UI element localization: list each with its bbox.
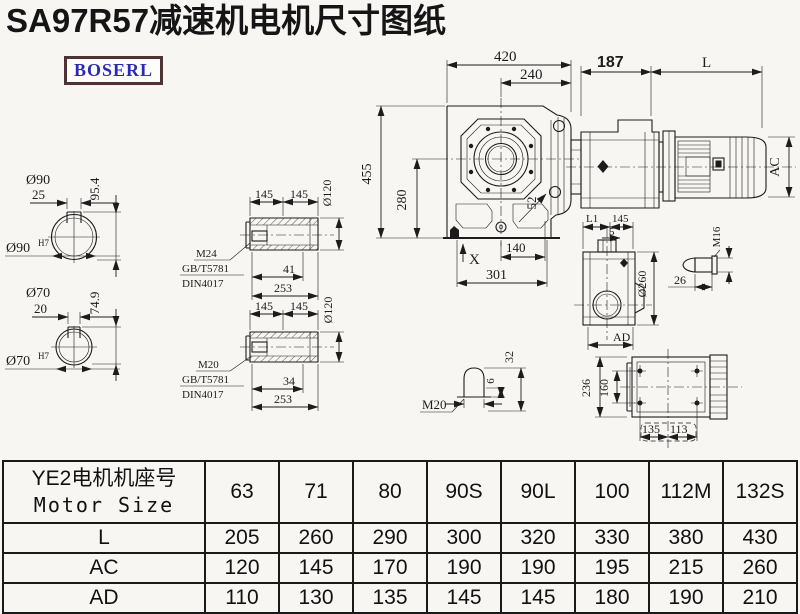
dim-label: 41 [283, 262, 295, 276]
dim-label: 140 [506, 240, 526, 255]
m16-bolt-detail: M16 26 [668, 226, 733, 291]
dim-label: 25 [32, 187, 45, 202]
row-label-ac: AC [3, 553, 205, 583]
dim-label: Ø70 [26, 286, 50, 301]
table-cell: 190 [427, 553, 501, 583]
dim-label: 145 [290, 187, 308, 201]
dim-label: 95.4 [87, 177, 102, 200]
output-side-view: L1 145 5 Ø260 AD [574, 213, 659, 350]
col-header-63: 63 [205, 461, 279, 523]
shaft-section-70: Ø70 20 74.9 Ø70 H7 [5, 286, 121, 381]
dim-label: 236 [579, 379, 593, 397]
col-header-90s: 90S [427, 461, 501, 523]
dim-label: 240 [520, 67, 543, 83]
col-header-132s: 132S [723, 461, 797, 523]
table-cell: 145 [279, 553, 353, 583]
dimension-drawing-page: SA97R57减速机电机尺寸图纸 BOSERL Ø90 25 95.4 [0, 0, 800, 613]
table-cell: 130 [279, 583, 353, 613]
table-header-cn: YE2电机机座号 [4, 466, 204, 492]
dim-label: 280 [395, 190, 410, 211]
table-cell: 260 [279, 523, 353, 553]
table-cell: 180 [575, 583, 649, 613]
dim-label: AC [768, 157, 783, 176]
hollow-shaft-m20: 145 145 Ø120 M20 GB/T5781 DIN4017 34 253 [180, 297, 344, 411]
table-header-en: Motor Size [4, 492, 204, 518]
table-row-ad: AD 110 130 135 145 145 180 190 210 [3, 583, 797, 613]
dim-label: Ø90 [6, 241, 30, 256]
table-row-l: L 205 260 290 300 320 330 380 430 [3, 523, 797, 553]
standard-label: GB/T5781 [182, 374, 229, 386]
thread-label: M24 [196, 248, 217, 260]
col-header-100: 100 [575, 461, 649, 523]
dim-label: 20 [34, 301, 47, 316]
table-cell: 195 [575, 553, 649, 583]
dim-label: 145 [255, 187, 273, 201]
dim-label: 113 [670, 422, 688, 436]
table-cell: 215 [649, 553, 723, 583]
dim-label: Ø260 [635, 271, 649, 298]
table-cell: 145 [427, 583, 501, 613]
m20-plug-detail: M20 6 32 [420, 351, 526, 412]
table-cell: 145 [501, 583, 575, 613]
table-cell: 380 [649, 523, 723, 553]
dim-label: 34 [283, 374, 295, 388]
dim-label: Ø70 [6, 354, 30, 369]
dim-label: 253 [274, 392, 292, 406]
dim-label: 5 [609, 226, 615, 238]
table-cell: 300 [427, 523, 501, 553]
row-label-l: L [3, 523, 205, 553]
dim-label: 52 [524, 197, 539, 210]
dim-label: Ø90 [26, 173, 50, 188]
dim-label: 26 [674, 273, 686, 287]
dim-label: 420 [494, 49, 517, 65]
table-cell: 330 [575, 523, 649, 553]
thread-label: M16 [711, 226, 723, 247]
row-label-ad: AD [3, 583, 205, 613]
table-cell: 205 [205, 523, 279, 553]
dim-label: 301 [486, 268, 507, 283]
dim-label: Ø120 [320, 180, 334, 207]
dim-label: 145 [290, 299, 308, 313]
table-cell: 320 [501, 523, 575, 553]
technical-drawing: Ø90 25 95.4 Ø90 H7 Ø70 20 [0, 0, 800, 462]
table-cell: 120 [205, 553, 279, 583]
standard-label: GB/T5781 [182, 263, 229, 275]
dim-label: 455 [360, 164, 375, 185]
dim-label: 135 [642, 422, 660, 436]
table-header-motor-size: YE2电机机座号 Motor Size [3, 461, 205, 523]
dim-label: 6 [485, 378, 497, 384]
table-cell: 260 [723, 553, 797, 583]
shaft-section-90: Ø90 25 95.4 Ø90 H7 [5, 173, 121, 277]
table-cell: 190 [501, 553, 575, 583]
col-header-80: 80 [353, 461, 427, 523]
thread-label: M20 [198, 359, 219, 371]
table-cell: 210 [723, 583, 797, 613]
table-row-ac: AC 120 145 170 190 190 195 215 260 [3, 553, 797, 583]
dim-label: 145 [612, 213, 629, 225]
table-cell: 190 [649, 583, 723, 613]
dim-label: 32 [502, 351, 516, 363]
col-header-71: 71 [279, 461, 353, 523]
dim-tolerance: H7 [38, 238, 49, 248]
col-header-90l: 90L [501, 461, 575, 523]
dim-label: L1 [586, 213, 598, 225]
top-view: 236 160 135 113 [579, 349, 742, 448]
dim-label: X [469, 252, 480, 268]
dim-label: 74.9 [87, 292, 102, 315]
dim-label: 187 [597, 54, 624, 71]
table-cell: 290 [353, 523, 427, 553]
thread-label: M20 [422, 397, 447, 412]
motor-size-table: YE2电机机座号 Motor Size 63 71 80 90S 90L 100… [2, 460, 798, 614]
standard-label: DIN4017 [182, 389, 224, 401]
table-cell: 170 [353, 553, 427, 583]
front-view: X 52 420 240 455 280 140 301 [360, 49, 582, 287]
table-cell: 110 [205, 583, 279, 613]
dim-label: 145 [255, 299, 273, 313]
table-cell: 430 [723, 523, 797, 553]
standard-label: DIN4017 [182, 278, 224, 290]
dim-label: 160 [597, 379, 611, 397]
dim-label: Ø120 [321, 297, 335, 324]
dim-label: 253 [274, 281, 292, 295]
dim-label: AD [613, 330, 631, 344]
col-header-112m: 112M [649, 461, 723, 523]
dim-tolerance: H7 [38, 351, 49, 361]
dim-label: L [702, 55, 711, 71]
side-view: 187 L AC [566, 54, 796, 208]
table-cell: 135 [353, 583, 427, 613]
hollow-shaft-m24: 145 145 Ø120 M24 GB/T5781 DIN4017 41 253 [180, 180, 344, 300]
table-header-row: YE2电机机座号 Motor Size 63 71 80 90S 90L 100… [3, 461, 797, 523]
